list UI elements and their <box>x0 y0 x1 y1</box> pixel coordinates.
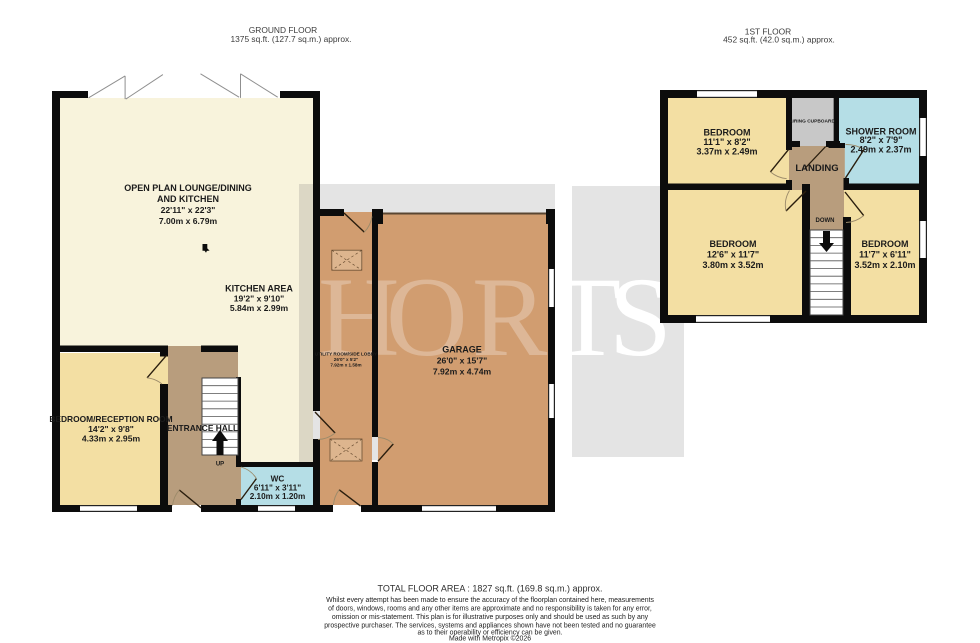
svg-text:26'0" x 15'7": 26'0" x 15'7" <box>437 356 487 366</box>
svg-text:KITCHEN AREA: KITCHEN AREA <box>225 284 293 294</box>
svg-text:AND KITCHEN: AND KITCHEN <box>157 194 219 204</box>
svg-text:3.37m x 2.49m: 3.37m x 2.49m <box>696 147 757 157</box>
svg-text:4.33m x 2.95m: 4.33m x 2.95m <box>82 434 141 444</box>
svg-text:2.49m x 2.37m: 2.49m x 2.37m <box>850 144 911 154</box>
svg-text:UP: UP <box>216 462 224 468</box>
svg-text:GARAGE: GARAGE <box>442 345 482 355</box>
svg-text:3.52m x 2.10m: 3.52m x 2.10m <box>854 260 915 270</box>
svg-text:omission or mis-statement. Thi: omission or mis-statement. This plan is … <box>332 614 649 621</box>
svg-text:prospective purchaser. The ser: prospective purchaser. The services, sys… <box>324 623 656 630</box>
svg-text:WC: WC <box>271 475 285 484</box>
svg-text:TOTAL FLOOR AREA : 1827 sq.ft.: TOTAL FLOOR AREA : 1827 sq.ft. (169.8 sq… <box>378 584 603 594</box>
svg-text:11'1" x 8'2": 11'1" x 8'2" <box>703 137 750 147</box>
svg-text:7.92m x 4.74m: 7.92m x 4.74m <box>433 367 492 377</box>
svg-text:BEDROOM/RECEPTION ROOM: BEDROOM/RECEPTION ROOM <box>49 414 172 424</box>
svg-text:Made with Metropix ©2026: Made with Metropix ©2026 <box>449 635 531 643</box>
svg-text:AIRING CUPBOARD: AIRING CUPBOARD <box>789 119 835 125</box>
svg-text:ENTRANCE HALL: ENTRANCE HALL <box>167 423 238 433</box>
svg-text:BEDROOM: BEDROOM <box>710 239 757 249</box>
svg-text:26'0" x 5'2": 26'0" x 5'2" <box>334 357 358 362</box>
svg-text:452 sq.ft. (42.0 sq.m.) approx: 452 sq.ft. (42.0 sq.m.) approx. <box>723 35 835 45</box>
svg-text:BEDROOM: BEDROOM <box>862 239 909 249</box>
svg-text:12'6" x 11'7": 12'6" x 11'7" <box>707 250 759 260</box>
svg-text:1375 sq.ft. (127.7 sq.m.) appr: 1375 sq.ft. (127.7 sq.m.) approx. <box>230 34 351 44</box>
svg-text:DOWN: DOWN <box>816 218 835 224</box>
svg-text:UTILITY ROOM/SIDE LOBBY: UTILITY ROOM/SIDE LOBBY <box>315 352 377 357</box>
svg-text:Whilst every attempt has been: Whilst every attempt has been made to en… <box>326 597 654 604</box>
svg-text:3.80m x 3.52m: 3.80m x 3.52m <box>702 260 763 270</box>
svg-text:5.84m x 2.99m: 5.84m x 2.99m <box>230 303 289 313</box>
svg-text:19'2" x 9'10": 19'2" x 9'10" <box>234 294 284 304</box>
svg-text:7.92m x 1.58m: 7.92m x 1.58m <box>330 363 361 368</box>
svg-text:2.10m x 1.20m: 2.10m x 1.20m <box>250 492 306 501</box>
svg-text:22'11" x 22'3": 22'11" x 22'3" <box>161 205 216 215</box>
svg-text:11'7" x 6'11": 11'7" x 6'11" <box>859 250 911 260</box>
svg-text:14'2" x 9'8": 14'2" x 9'8" <box>88 424 134 434</box>
svg-text:OPEN PLAN LOUNGE/DINING: OPEN PLAN LOUNGE/DINING <box>124 183 252 193</box>
svg-text:LANDING: LANDING <box>795 163 838 174</box>
svg-text:BEDROOM: BEDROOM <box>704 128 751 138</box>
svg-text:of doors, windows, rooms and a: of doors, windows, rooms and any other i… <box>328 606 652 613</box>
svg-text:7.00m x 6.79m: 7.00m x 6.79m <box>159 216 218 226</box>
